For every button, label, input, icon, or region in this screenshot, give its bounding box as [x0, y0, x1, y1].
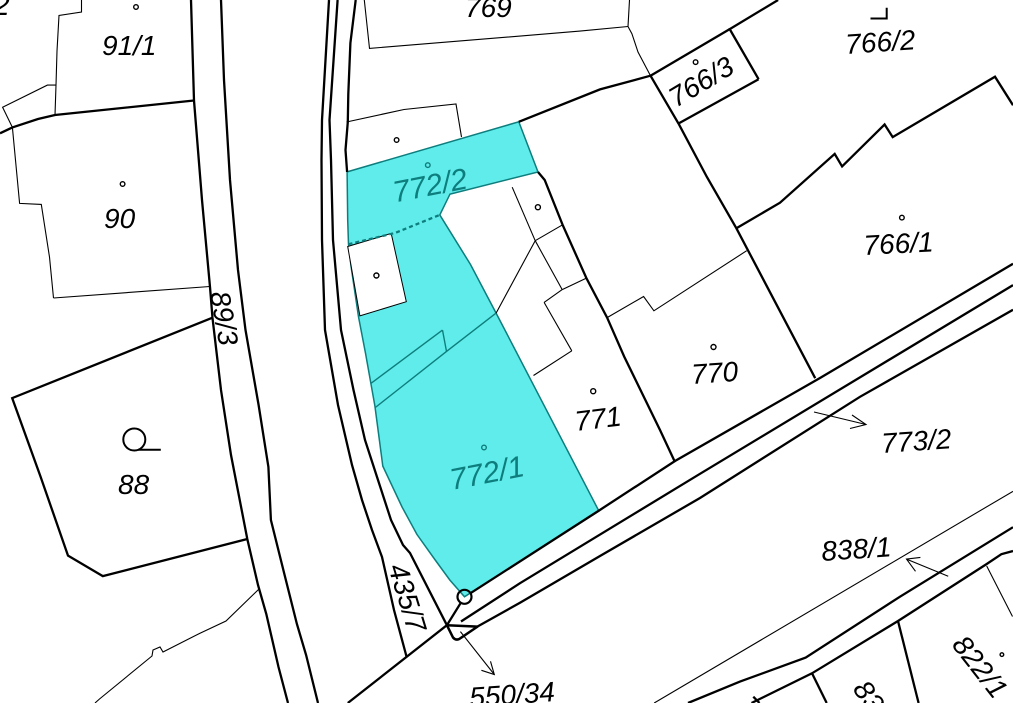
svg-text:766/2: 766/2 [844, 24, 916, 60]
svg-text:838/1: 838/1 [820, 531, 892, 567]
svg-text:90: 90 [104, 203, 136, 234]
svg-text:88: 88 [118, 469, 150, 500]
svg-text:771: 771 [573, 400, 623, 436]
svg-text:91/1: 91/1 [102, 30, 157, 61]
svg-text:769: 769 [465, 0, 512, 23]
svg-text:770: 770 [690, 356, 739, 390]
svg-text:766/1: 766/1 [863, 226, 935, 261]
svg-text:773/2: 773/2 [880, 423, 952, 459]
svg-text:2: 2 [0, 0, 10, 22]
